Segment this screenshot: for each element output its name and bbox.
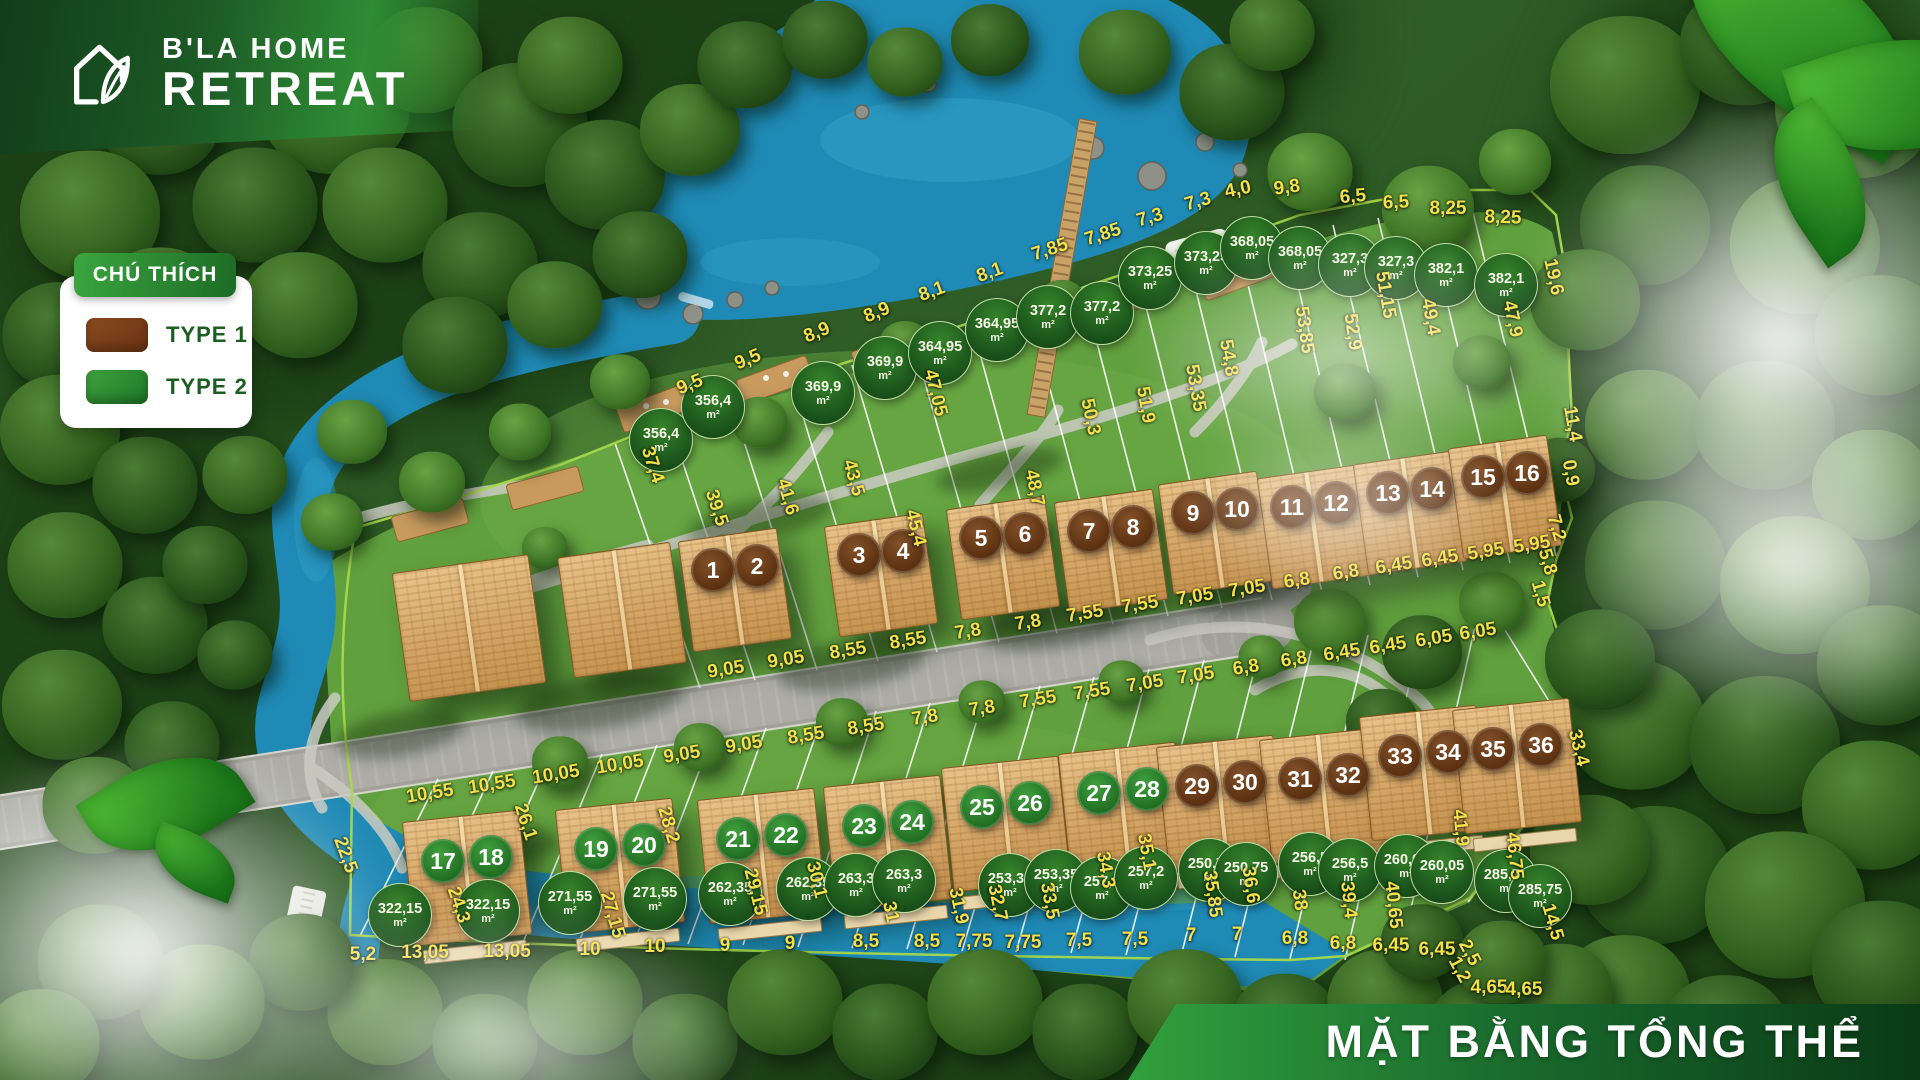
tree[interactable] [518, 17, 623, 114]
lot-marker-24[interactable]: 24 [890, 800, 934, 844]
lot-area-value: 256,5 [1332, 857, 1368, 872]
lot-area-value: 364,95 [975, 317, 1019, 332]
tree[interactable] [928, 949, 1043, 1055]
area-unit: m² [933, 355, 946, 367]
area-unit: m² [1095, 890, 1108, 902]
title-banner: MẶT BẰNG TỔNG THỂ [1128, 1004, 1920, 1080]
lot-area-value: 263,3 [838, 872, 874, 887]
tree[interactable] [590, 354, 650, 409]
lot-marker-21[interactable]: 21 [716, 817, 760, 861]
dimension-label[interactable]: 7 [1232, 924, 1243, 946]
lot-marker-3[interactable]: 3 [837, 533, 881, 577]
tree[interactable] [93, 437, 198, 534]
lot-marker-7[interactable]: 7 [1067, 509, 1111, 553]
lot-marker-17[interactable]: 17 [421, 839, 465, 883]
area-unit: m² [1139, 880, 1152, 892]
lot-area-value: 356,4 [695, 394, 731, 409]
dimension-label[interactable]: 7 [1186, 925, 1197, 947]
area-unit: m² [706, 409, 719, 421]
lot-area-value: 271,55 [548, 890, 592, 905]
lot-area-value: 373,25 [1128, 265, 1172, 280]
lot-area-badge[interactable]: 260,05m² [1410, 840, 1474, 904]
tree[interactable] [489, 403, 551, 460]
area-unit: m² [816, 395, 829, 407]
dimension-label[interactable]: 8,5 [853, 931, 879, 953]
dimension-label[interactable]: 39,4 [1335, 880, 1361, 919]
area-unit: m² [1041, 319, 1054, 331]
lot-marker-1[interactable]: 1 [691, 548, 735, 592]
lot-marker-35[interactable]: 35 [1471, 727, 1515, 771]
dimension-label[interactable]: 8,25 [1430, 198, 1467, 220]
dimension-label[interactable]: 7,8 [910, 705, 940, 731]
tree[interactable] [317, 400, 387, 464]
lot-marker-26[interactable]: 26 [1008, 781, 1052, 825]
lot-marker-34[interactable]: 34 [1426, 730, 1470, 774]
dimension-label[interactable]: 6,5 [1339, 185, 1367, 209]
lot-area-value: 263,3 [886, 868, 922, 883]
lot-marker-8[interactable]: 8 [1111, 505, 1155, 549]
lot-marker-28[interactable]: 28 [1125, 767, 1169, 811]
villa-building[interactable] [1452, 698, 1582, 835]
legend-swatch-2 [86, 370, 148, 404]
villa-building[interactable] [946, 496, 1061, 621]
area-unit: m² [878, 370, 891, 382]
tree[interactable] [698, 21, 793, 108]
legend-items: TYPE 1TYPE 2 [60, 296, 252, 404]
lot-marker-2[interactable]: 2 [735, 544, 779, 588]
lot-marker-25[interactable]: 25 [960, 785, 1004, 829]
dimension-label[interactable]: 4,65 [1471, 977, 1508, 999]
tree[interactable] [868, 28, 943, 97]
lot-area-value: 364,95 [918, 340, 962, 355]
brand-logo-icon [52, 28, 140, 116]
lot-marker-29[interactable]: 29 [1175, 764, 1219, 808]
dimension-label[interactable]: 6,8 [1330, 933, 1356, 955]
tree[interactable] [1230, 0, 1315, 71]
legend-label: TYPE 1 [166, 322, 248, 348]
lot-area-value: 260,05 [1420, 859, 1464, 874]
dimension-label[interactable]: 41,9 [1447, 808, 1473, 847]
area-unit: m² [648, 901, 661, 913]
dimension-label[interactable]: 6,8 [1231, 655, 1261, 681]
dimension-label[interactable]: 6,8 [1282, 928, 1308, 950]
logo-banner: B'LA HOME RETREAT [0, 0, 478, 154]
tree[interactable] [243, 252, 358, 358]
dimension-label[interactable]: 9,8 [1272, 175, 1301, 200]
tree[interactable] [1479, 129, 1551, 195]
lot-marker-19[interactable]: 19 [574, 827, 618, 871]
tree[interactable] [508, 261, 603, 348]
tree[interactable] [8, 512, 123, 618]
tree[interactable] [399, 452, 465, 513]
area-unit: m² [897, 883, 910, 895]
lot-marker-27[interactable]: 27 [1077, 771, 1121, 815]
dimension-label[interactable]: 6,5 [1382, 191, 1410, 214]
lot-area-value: 377,2 [1084, 300, 1120, 315]
lot-marker-30[interactable]: 30 [1223, 760, 1267, 804]
tree[interactable] [163, 526, 248, 604]
lot-area-badge[interactable]: 369,9m² [791, 361, 855, 425]
dimension-label[interactable]: 7,75 [956, 931, 993, 953]
tree[interactable] [193, 148, 318, 263]
tree[interactable] [403, 297, 508, 394]
area-unit: m² [990, 332, 1003, 344]
dimension-label[interactable]: 9 [785, 933, 796, 955]
tree[interactable] [951, 4, 1029, 76]
site-plan-scene: 1234567891011121314151617181920212223242… [0, 0, 1920, 1080]
lot-area-badge[interactable]: 271,55m² [623, 867, 687, 931]
amenity-building[interactable] [557, 542, 687, 679]
dimension-label[interactable]: 9 [720, 935, 731, 957]
tree[interactable] [301, 493, 363, 550]
lot-area-value: 369,9 [867, 355, 903, 370]
lot-marker-16[interactable]: 16 [1505, 451, 1549, 495]
legend-label: TYPE 2 [166, 374, 248, 400]
dimension-label[interactable]: 6,45 [1419, 939, 1456, 961]
tree[interactable] [203, 436, 288, 514]
lot-marker-18[interactable]: 18 [469, 835, 513, 879]
dimension-label[interactable]: 7,75 [1005, 932, 1042, 954]
lot-area-value: 271,55 [633, 886, 677, 901]
tree[interactable] [783, 1, 868, 79]
area-unit: m² [1095, 315, 1108, 327]
legend-item-2[interactable]: TYPE 2 [86, 370, 252, 404]
lot-marker-36[interactable]: 36 [1519, 723, 1563, 767]
tree[interactable] [1079, 10, 1171, 95]
legend-item-1[interactable]: TYPE 1 [86, 318, 252, 352]
lot-marker-23[interactable]: 23 [842, 804, 886, 848]
dimension-label[interactable]: 4,65 [1506, 979, 1543, 1001]
legend-title: CHÚ THÍCH [74, 253, 236, 297]
dimension-label[interactable]: 7,5 [1066, 930, 1092, 952]
lot-area-value: 356,4 [643, 427, 679, 442]
lot-marker-32[interactable]: 32 [1326, 753, 1370, 797]
villa-building[interactable] [678, 528, 793, 653]
area-unit: m² [723, 896, 736, 908]
dimension-label[interactable]: 6,8 [1279, 647, 1309, 673]
dimension-label[interactable]: 38 [1287, 888, 1312, 912]
dimension-label[interactable]: 8,25 [1484, 206, 1522, 229]
lot-area-value: 377,2 [1030, 304, 1066, 319]
dimension-label[interactable]: 31 [877, 899, 903, 924]
dimension-label[interactable]: 8,5 [914, 931, 940, 953]
tree[interactable] [833, 984, 938, 1080]
lot-area-badge[interactable]: 369,9m² [853, 336, 917, 400]
plan-title: MẶT BẰNG TỔNG THỂ [1326, 1016, 1864, 1068]
dimension-label[interactable]: 7,8 [967, 696, 997, 722]
lot-marker-22[interactable]: 22 [764, 813, 808, 857]
lot-area-value: 285,75 [1518, 883, 1562, 898]
area-unit: m² [1303, 866, 1316, 878]
tree[interactable] [1033, 984, 1138, 1080]
brand-name-line1: B'LA HOME [162, 33, 408, 66]
lot-marker-31[interactable]: 31 [1278, 757, 1322, 801]
amenity-building[interactable] [392, 554, 547, 702]
brand-name-line2: RETREAT [162, 66, 408, 112]
legend-swatch-1 [86, 318, 148, 352]
area-unit: m² [1435, 874, 1448, 886]
lot-marker-5[interactable]: 5 [959, 516, 1003, 560]
lot-marker-33[interactable]: 33 [1378, 734, 1422, 778]
dimension-label[interactable]: 7,8 [953, 619, 983, 645]
dimension-label[interactable]: 7,8 [1013, 610, 1043, 636]
dimension-label[interactable]: 6,45 [1373, 935, 1410, 957]
tree[interactable] [198, 621, 273, 690]
dimension-label[interactable]: 7,5 [1122, 929, 1148, 951]
lot-marker-6[interactable]: 6 [1003, 512, 1047, 556]
area-unit: m² [849, 887, 862, 899]
lot-area-value: 369,9 [805, 380, 841, 395]
mist-cloud[interactable] [1180, 420, 1510, 600]
tree[interactable] [593, 211, 688, 298]
area-unit: m² [1143, 280, 1156, 292]
